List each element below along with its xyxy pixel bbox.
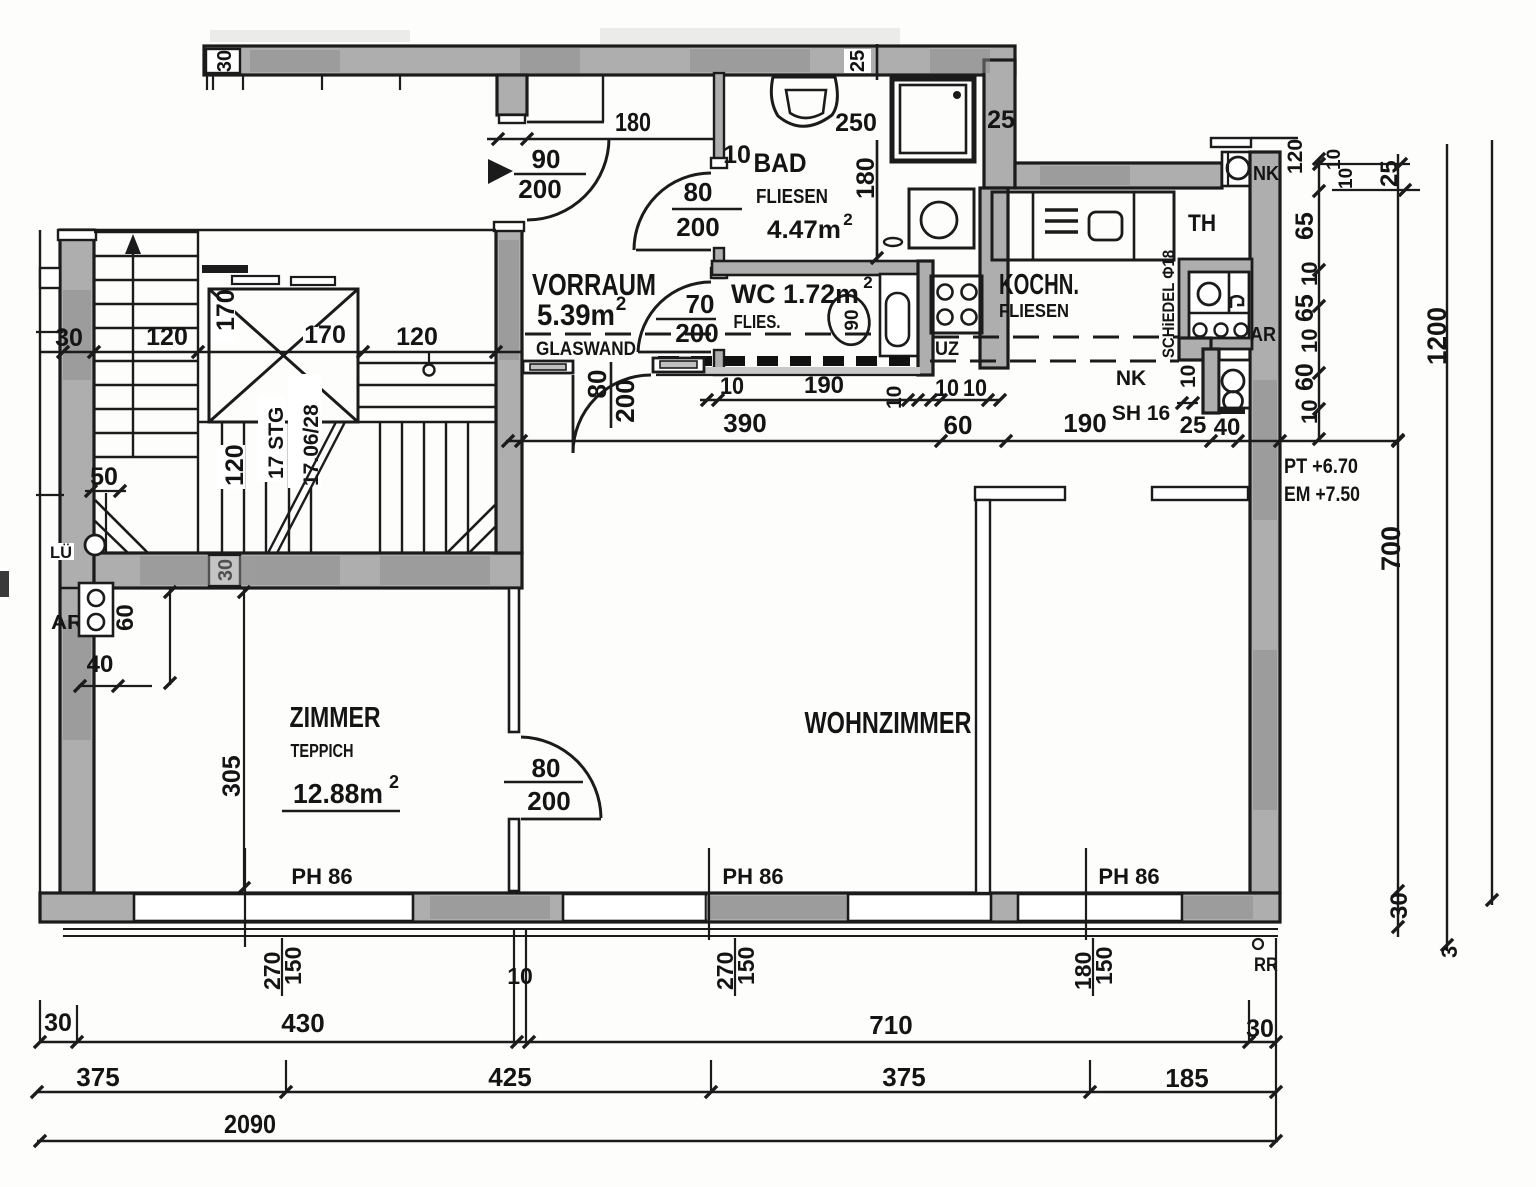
svg-text:2: 2 <box>863 273 872 292</box>
svg-text:170: 170 <box>304 321 346 349</box>
svg-text:TH: TH <box>1188 210 1216 237</box>
svg-text:10: 10 <box>720 373 744 400</box>
svg-text:FLIES.: FLIES. <box>734 312 781 332</box>
svg-text:375: 375 <box>882 1062 925 1092</box>
svg-text:150: 150 <box>733 947 759 985</box>
svg-text:WOHNZIMMER: WOHNZIMMER <box>805 705 972 740</box>
svg-text:30: 30 <box>55 324 83 352</box>
svg-text:190: 190 <box>804 372 844 399</box>
svg-text:120: 120 <box>146 323 188 351</box>
svg-text:10: 10 <box>1336 168 1357 189</box>
svg-text:4.47m: 4.47m <box>767 216 841 244</box>
svg-text:80: 80 <box>684 177 713 207</box>
svg-text:120: 120 <box>221 444 249 486</box>
svg-text:250: 250 <box>835 109 877 137</box>
svg-text:180: 180 <box>852 157 880 199</box>
svg-text:10: 10 <box>1297 262 1322 286</box>
svg-text:TEPPICH: TEPPICH <box>291 741 354 761</box>
svg-text:PH 86: PH 86 <box>722 864 783 889</box>
svg-text:40: 40 <box>1214 414 1241 441</box>
svg-text:180: 180 <box>615 107 651 137</box>
svg-text:2090: 2090 <box>224 1109 276 1139</box>
svg-text:10: 10 <box>1177 365 1200 388</box>
svg-text:185: 185 <box>1165 1063 1208 1093</box>
svg-text:30: 30 <box>44 1009 72 1037</box>
svg-text:305: 305 <box>218 755 246 797</box>
svg-text:10: 10 <box>1297 329 1322 353</box>
svg-text:30: 30 <box>1246 1015 1274 1043</box>
svg-text:200: 200 <box>527 786 570 816</box>
svg-text:200: 200 <box>676 212 719 242</box>
svg-text:ZIMMER: ZIMMER <box>290 702 381 734</box>
svg-text:17 STG: 17 STG <box>265 407 288 479</box>
svg-text:LÜ: LÜ <box>50 543 72 562</box>
svg-text:SH 16: SH 16 <box>1112 402 1170 425</box>
svg-text:80: 80 <box>532 753 561 783</box>
svg-text:10: 10 <box>883 386 906 409</box>
svg-text:710: 710 <box>869 1010 912 1040</box>
svg-text:25: 25 <box>1180 412 1207 439</box>
svg-text:10: 10 <box>963 375 987 402</box>
svg-text:25: 25 <box>987 106 1015 134</box>
svg-text:10: 10 <box>723 141 751 169</box>
svg-text:FLIESEN: FLIESEN <box>756 186 828 208</box>
svg-text:25: 25 <box>847 50 869 72</box>
svg-text:120: 120 <box>396 323 438 351</box>
svg-text:10: 10 <box>935 375 959 402</box>
svg-text:90: 90 <box>532 144 561 174</box>
svg-text:40: 40 <box>87 651 114 678</box>
svg-text:150: 150 <box>280 947 306 985</box>
svg-text:60: 60 <box>1291 363 1319 391</box>
svg-text:NK: NK <box>1116 367 1146 390</box>
svg-text:FLIESEN: FLIESEN <box>999 301 1069 321</box>
svg-text:12.88m: 12.88m <box>293 778 383 809</box>
svg-text:170: 170 <box>212 289 240 331</box>
svg-text:375: 375 <box>76 1062 119 1092</box>
svg-text:PH 86: PH 86 <box>1098 864 1159 889</box>
svg-text:PH 86: PH 86 <box>291 864 352 889</box>
svg-text:700: 700 <box>1376 526 1406 571</box>
svg-text:120: 120 <box>1284 139 1307 174</box>
svg-text:2: 2 <box>843 210 852 229</box>
svg-text:VORRAUM: VORRAUM <box>532 267 656 302</box>
svg-text:30: 30 <box>214 50 236 72</box>
svg-text:KOCHN.: KOCHN. <box>999 269 1079 301</box>
svg-text:65: 65 <box>1291 212 1319 240</box>
svg-text:60: 60 <box>944 410 973 440</box>
svg-text:10: 10 <box>507 963 533 989</box>
svg-text:200: 200 <box>675 318 718 348</box>
svg-text:70: 70 <box>686 289 715 319</box>
svg-text:10: 10 <box>1297 400 1322 424</box>
svg-text:200: 200 <box>610 379 640 422</box>
svg-text:NK: NK <box>1253 163 1279 185</box>
svg-text:1200: 1200 <box>1422 307 1452 365</box>
svg-text:2: 2 <box>389 772 399 792</box>
svg-text:3: 3 <box>1437 946 1462 958</box>
svg-text:GLASWAND: GLASWAND <box>536 339 636 360</box>
svg-text:200: 200 <box>518 174 561 204</box>
svg-text:SCHiEDEL Φ18: SCHiEDEL Φ18 <box>1159 250 1178 358</box>
svg-text:EM +7.50: EM +7.50 <box>1284 483 1360 506</box>
svg-text:430: 430 <box>281 1008 324 1038</box>
svg-text:65: 65 <box>1291 294 1319 322</box>
svg-text:PT +6.70: PT +6.70 <box>1284 455 1358 478</box>
svg-text:BAD: BAD <box>754 148 807 178</box>
svg-text:425: 425 <box>488 1062 531 1092</box>
svg-text:AR: AR <box>1250 324 1276 346</box>
svg-text:17.06/28: 17.06/28 <box>300 404 323 486</box>
svg-text:60: 60 <box>112 604 139 631</box>
svg-text:30: 30 <box>1386 892 1413 919</box>
svg-text:UZ: UZ <box>935 339 959 360</box>
svg-text:390: 390 <box>723 408 766 438</box>
svg-text:190: 190 <box>1063 408 1106 438</box>
svg-text:WC 1.72m: WC 1.72m <box>731 279 859 309</box>
svg-text:5.39m: 5.39m <box>537 299 615 332</box>
svg-text:150: 150 <box>1091 947 1117 985</box>
svg-text:80: 80 <box>582 370 612 399</box>
svg-text:2: 2 <box>616 294 627 315</box>
svg-text:RR: RR <box>1254 955 1278 976</box>
svg-text:10: 10 <box>1324 149 1345 170</box>
svg-text:90: 90 <box>842 309 863 330</box>
